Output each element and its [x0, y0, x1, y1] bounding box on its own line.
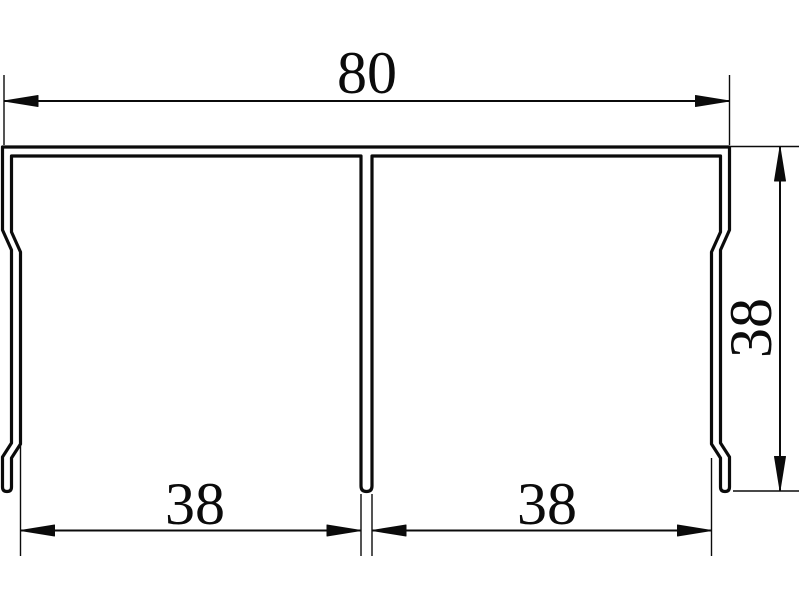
- arrowhead-left-opening-left: [21, 525, 55, 536]
- dimension-lines: [4, 101, 780, 531]
- dim-label-side-height: 38: [718, 298, 784, 358]
- arrowhead-right-opening-left: [372, 525, 406, 536]
- dim-label-left-opening: 38: [165, 471, 225, 537]
- dim-label-right-opening: 38: [517, 471, 577, 537]
- arrowhead-height-top: [775, 147, 786, 181]
- arrowhead-overall-left: [4, 96, 38, 107]
- dim-label-overall-width: 80: [337, 40, 397, 106]
- profile-outline: [3, 147, 730, 492]
- arrowhead-right-opening-right: [678, 525, 712, 536]
- arrowhead-left-opening-right: [327, 525, 361, 536]
- arrowhead-height-bottom: [775, 457, 786, 491]
- technical-drawing: 80 38 38 38: [0, 0, 800, 600]
- arrowhead-overall-right: [696, 96, 730, 107]
- drawing-canvas: 80 38 38 38: [0, 0, 800, 600]
- arrowheads: [4, 96, 786, 537]
